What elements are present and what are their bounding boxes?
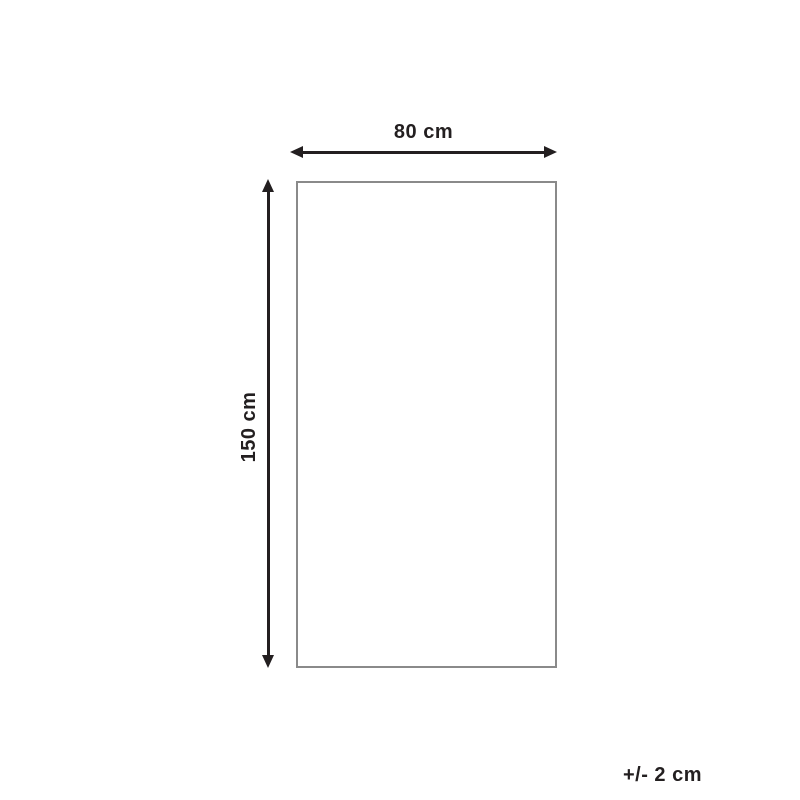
arrow-right-head-icon (544, 146, 557, 158)
arrow-left-head-icon (290, 146, 303, 158)
width-dimension-label: 80 cm (290, 121, 557, 144)
width-dimension-arrow-icon (290, 145, 557, 159)
arrow-down-head-icon (262, 655, 274, 668)
height-dimension-arrow-icon (261, 179, 275, 668)
product-outline-rect (296, 181, 557, 668)
height-dimension-label: 150 cm (237, 367, 261, 487)
arrow-up-head-icon (262, 179, 274, 192)
tolerance-label: +/- 2 cm (623, 764, 702, 787)
arrow-shaft (303, 151, 544, 154)
dimension-diagram: 80 cm 150 cm +/- 2 cm (0, 0, 800, 800)
arrow-shaft (267, 192, 270, 655)
